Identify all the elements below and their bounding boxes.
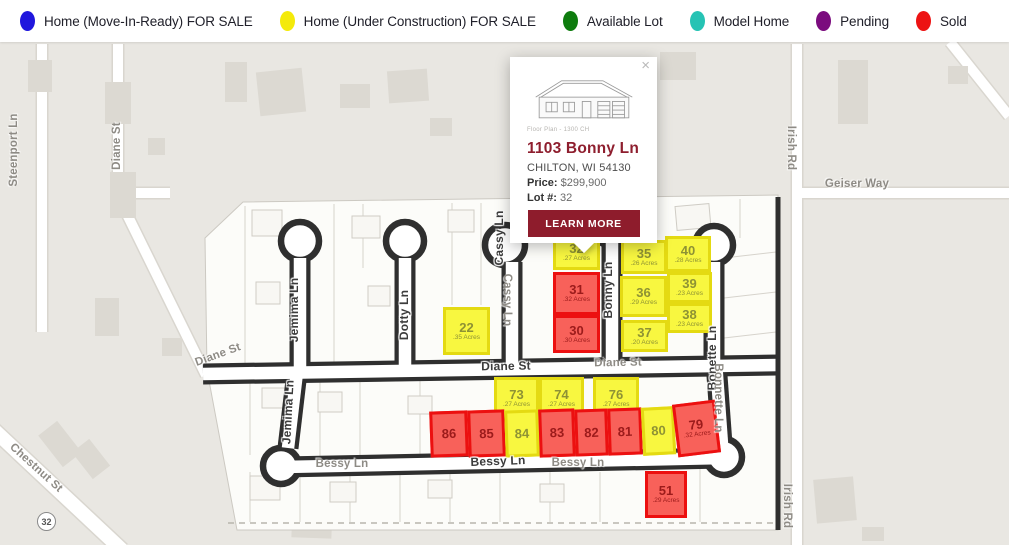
- lot-number: 83: [550, 426, 565, 440]
- legend-marker-icon: [563, 11, 578, 31]
- legend-item: Sold: [916, 11, 967, 31]
- lot-number: 40: [681, 244, 695, 257]
- lot-number: 35: [637, 247, 651, 260]
- popup-city-state: CHILTON, WI 54130: [527, 162, 657, 174]
- lot-number: 73: [509, 388, 523, 401]
- highway-32-badge: 32: [37, 512, 56, 531]
- price-value: $299,900: [561, 177, 607, 189]
- lot-36[interactable]: 36.29 Acres: [620, 276, 667, 317]
- legend-item: Pending: [816, 11, 889, 31]
- legend-bar: Home (Move-In-Ready) FOR SALEHome (Under…: [0, 0, 1009, 42]
- lot-number: 51: [659, 484, 673, 497]
- legend-marker-icon: [20, 11, 35, 31]
- lot-51[interactable]: 51.29 Acres: [645, 471, 687, 518]
- legend-item-label: Home (Under Construction) FOR SALE: [304, 14, 536, 29]
- lot-number-label: Lot #:: [527, 192, 557, 204]
- lot-acres: .26 Acres: [630, 261, 657, 268]
- lot-38[interactable]: 38.23 Acres: [667, 303, 712, 333]
- lot-acres: .28 Acres: [674, 258, 701, 265]
- legend-item-label: Sold: [940, 14, 967, 29]
- lot-number: 85: [479, 427, 494, 441]
- lot-acres: .23 Acres: [676, 322, 703, 329]
- legend-marker-icon: [816, 11, 831, 31]
- lot-number-value: 32: [560, 192, 572, 204]
- lot-acres: .29 Acres: [630, 300, 657, 307]
- legend-item-label: Pending: [840, 14, 889, 29]
- lot-acres: .27 Acres: [563, 256, 590, 263]
- legend-item: Model Home: [690, 11, 790, 31]
- lot-acres: .27 Acres: [548, 402, 575, 409]
- lot-number: 80: [651, 424, 666, 438]
- lot-84[interactable]: 84: [504, 409, 540, 457]
- legend-item-label: Home (Move-In-Ready) FOR SALE: [44, 14, 253, 29]
- lot-acres: .35 Acres: [453, 335, 480, 342]
- lot-acres: .30 Acres: [563, 338, 590, 345]
- lot-number: 22: [459, 321, 473, 334]
- lot-acres: .32 Acres: [684, 431, 712, 441]
- lot-info-popup: × Floor Plan - 1300 CH 1: [510, 57, 657, 243]
- legend-marker-icon: [690, 11, 705, 31]
- lot-number: 30: [569, 324, 583, 337]
- popup-price-row: Price: $299,900: [527, 177, 657, 189]
- lot-number: 31: [569, 283, 583, 296]
- lot-30[interactable]: 30.30 Acres: [553, 315, 600, 353]
- lot-22[interactable]: 22.35 Acres: [443, 307, 490, 355]
- price-label: Price:: [527, 177, 558, 189]
- lot-number: 36: [636, 286, 650, 299]
- lot-acres: .20 Acres: [631, 340, 658, 347]
- legend-item-label: Available Lot: [587, 14, 663, 29]
- popup-lot-row: Lot #: 32: [527, 192, 657, 204]
- lot-number: 81: [618, 425, 633, 439]
- lot-81[interactable]: 81: [607, 407, 643, 455]
- lot-number: 86: [442, 427, 457, 441]
- lot-86[interactable]: 86: [429, 410, 469, 457]
- lot-82[interactable]: 82: [574, 408, 609, 456]
- lot-number: 84: [515, 427, 530, 441]
- plat-map-page: 32.27 Acres31.32 Acres30.30 Acres35.26 A…: [0, 0, 1009, 545]
- floor-plan-sketch: [532, 73, 636, 123]
- legend-item: Home (Move-In-Ready) FOR SALE: [20, 11, 253, 31]
- lot-number: 74: [554, 388, 568, 401]
- legend-item: Home (Under Construction) FOR SALE: [280, 11, 536, 31]
- lot-acres: .27 Acres: [503, 402, 530, 409]
- lot-number: 37: [637, 326, 651, 339]
- lot-35[interactable]: 35.26 Acres: [621, 240, 667, 274]
- lot-40[interactable]: 40.28 Acres: [665, 236, 711, 272]
- floor-plan-caption: Floor Plan - 1300 CH: [527, 127, 657, 133]
- lot-number: 82: [584, 426, 599, 440]
- lot-80[interactable]: 80: [641, 406, 676, 456]
- lot-number: 38: [682, 308, 696, 321]
- lot-83[interactable]: 83: [538, 408, 576, 457]
- legend-item: Available Lot: [563, 11, 663, 31]
- learn-more-button[interactable]: LEARN MORE: [528, 210, 640, 237]
- legend-marker-icon: [280, 11, 295, 31]
- popup-address-title: 1103 Bonny Ln: [527, 140, 657, 158]
- lot-31[interactable]: 31.32 Acres: [553, 272, 600, 315]
- lot-number: 39: [682, 277, 696, 290]
- lots-layer: 32.27 Acres31.32 Acres30.30 Acres35.26 A…: [0, 0, 1009, 545]
- popup-body: × Floor Plan - 1300 CH 1: [510, 57, 657, 243]
- lot-37[interactable]: 37.20 Acres: [621, 320, 668, 352]
- lot-79[interactable]: 79.32 Acres: [672, 400, 721, 458]
- lot-39[interactable]: 39.23 Acres: [667, 272, 712, 303]
- legend-marker-icon: [916, 11, 931, 31]
- lot-85[interactable]: 85: [467, 409, 506, 457]
- close-icon[interactable]: ×: [641, 58, 650, 73]
- legend-item-label: Model Home: [714, 14, 790, 29]
- lot-acres: .29 Acres: [652, 498, 679, 505]
- lot-number: 76: [609, 388, 623, 401]
- lot-acres: .23 Acres: [676, 291, 703, 298]
- lot-acres: .32 Acres: [563, 297, 590, 304]
